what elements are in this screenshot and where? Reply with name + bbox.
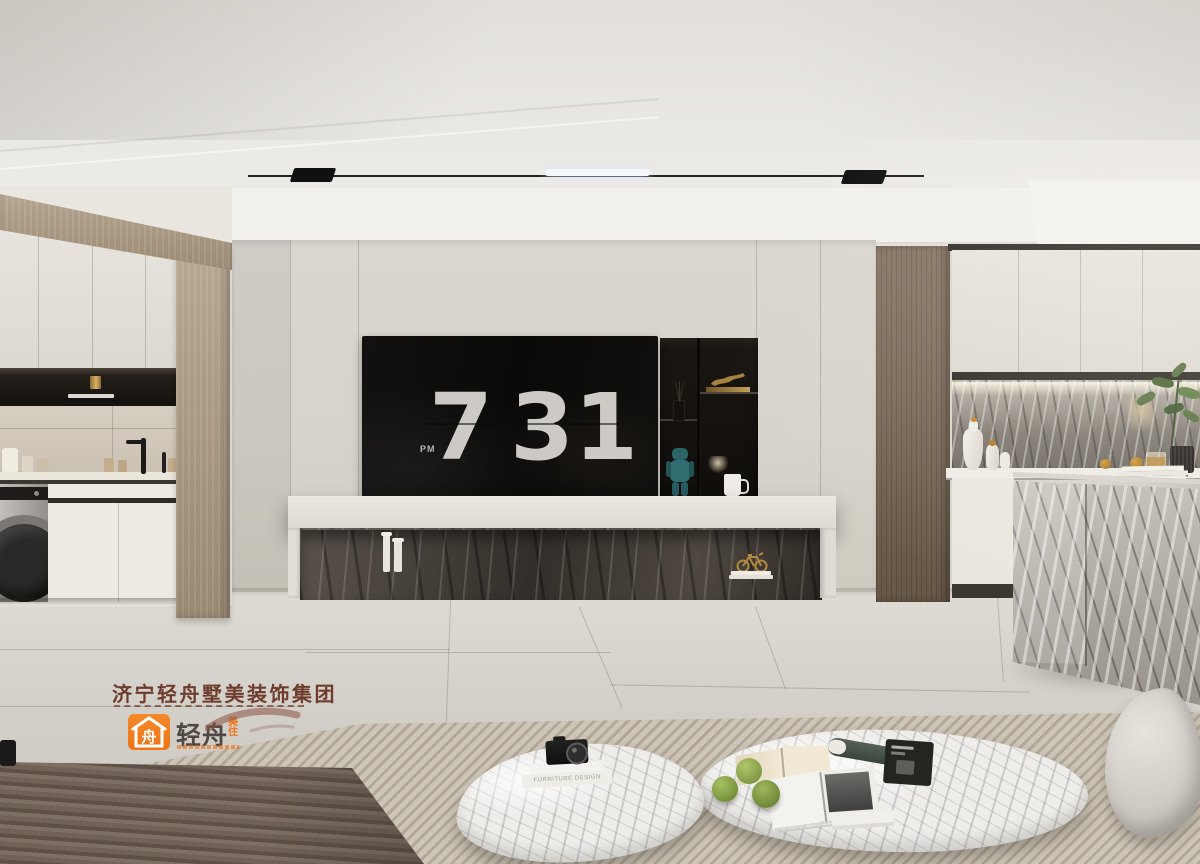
- lime: [712, 776, 738, 802]
- mug-handle: [740, 479, 749, 494]
- cabinet-seam: [118, 503, 119, 602]
- white-mug: [724, 474, 741, 496]
- watermark: 济宁轻舟墅美装饰集团 舟 轻舟 美 住: [108, 678, 368, 758]
- reed-diffuser-bottle: [673, 400, 685, 421]
- fruit: [1100, 459, 1111, 469]
- cabinet-seam: [1018, 250, 1019, 374]
- plinth-side-panel: [820, 528, 836, 598]
- vase-lid: [971, 417, 977, 422]
- brass-animal-figurine: [708, 368, 748, 388]
- niche-shelf: [700, 392, 758, 394]
- ceiling-corner-shade: [0, 0, 1200, 140]
- clock-meridiem: PM: [420, 444, 436, 454]
- right-base-cabinet: [952, 478, 1014, 588]
- display-niche: [660, 338, 758, 508]
- linear-light-lit: [545, 169, 650, 176]
- camera: [545, 739, 588, 767]
- candlestick: [394, 540, 402, 572]
- cabinet-seam: [38, 228, 39, 368]
- cabinet-seam: [1080, 250, 1081, 374]
- cabinet-seam: [1142, 250, 1143, 374]
- candlestick: [383, 534, 390, 572]
- jar-lid: [989, 440, 996, 446]
- flip-clock-split-line: [422, 423, 618, 425]
- panel-seam: [358, 240, 359, 498]
- doorway-column: [176, 246, 230, 618]
- candlestick-cap: [392, 538, 404, 542]
- white-jar: [986, 444, 999, 470]
- gold-bicycle-figurine: [735, 549, 769, 573]
- washing-machine: [0, 484, 48, 602]
- floor-seam: [0, 649, 450, 650]
- watermark-company-name: 济宁轻舟墅美装饰集团: [112, 678, 337, 707]
- island-corner-line: [1085, 484, 1087, 666]
- watermark-swoosh: [205, 704, 301, 734]
- magazine-cover: [883, 739, 934, 786]
- island-left-face-highlight: [1013, 474, 1085, 669]
- right-upper-cabinets: [952, 250, 1200, 374]
- track-light-fixture: [290, 168, 337, 182]
- dropped-ceiling-band: [230, 188, 1042, 242]
- wood-cup: [104, 458, 114, 472]
- track-light-fixture: [841, 170, 888, 184]
- cup: [22, 456, 33, 472]
- wall-panel-shade: [230, 240, 290, 600]
- cabinet-toe-shadow: [0, 598, 187, 606]
- gold-cup: [90, 376, 101, 389]
- plant-foliage: [1130, 360, 1200, 456]
- floating-console: [288, 496, 836, 531]
- toe-kick: [952, 584, 1014, 598]
- svg-text:舟: 舟: [141, 728, 156, 746]
- wood-divider-panel: [876, 246, 950, 602]
- pitcher: [2, 448, 18, 472]
- lime: [752, 780, 780, 808]
- wood-cup: [118, 460, 127, 472]
- clock-hour: 7: [420, 382, 502, 474]
- washer-door: [0, 515, 48, 602]
- ceiling-beam-right: [1028, 180, 1200, 246]
- washer-control-panel: [0, 487, 48, 500]
- niche-divider: [697, 338, 701, 508]
- washer-knob: [34, 491, 39, 496]
- drawer-groove: [46, 498, 187, 503]
- lime: [736, 758, 762, 784]
- white-vase-tall: [963, 428, 983, 470]
- cabinet-seam: [92, 228, 93, 368]
- white-jar-small: [1000, 452, 1010, 470]
- tv-screen: 7 31 PM: [362, 336, 658, 500]
- scene-root: 7 31 PM: [0, 0, 1200, 864]
- clock-minute: 31: [510, 382, 626, 474]
- floor-seam: [305, 652, 610, 653]
- dried-flower: [708, 456, 728, 473]
- book-stack-base: [729, 575, 773, 579]
- tray: [62, 398, 120, 402]
- teal-bear-figure: [666, 448, 694, 498]
- faucet-spout: [126, 440, 145, 444]
- left-shelf-niche: [0, 368, 177, 406]
- house-boat-icon: 舟: [128, 714, 170, 750]
- watermark-tagline-marks: [177, 745, 239, 749]
- niche-glow: [660, 338, 758, 350]
- faucet-sprayer: [162, 452, 166, 473]
- tile-seam: [0, 428, 177, 429]
- candlestick-cap: [381, 532, 392, 536]
- watermark-logo: 舟: [128, 714, 170, 750]
- bowl: [36, 459, 49, 472]
- sofa-remote: [0, 740, 16, 766]
